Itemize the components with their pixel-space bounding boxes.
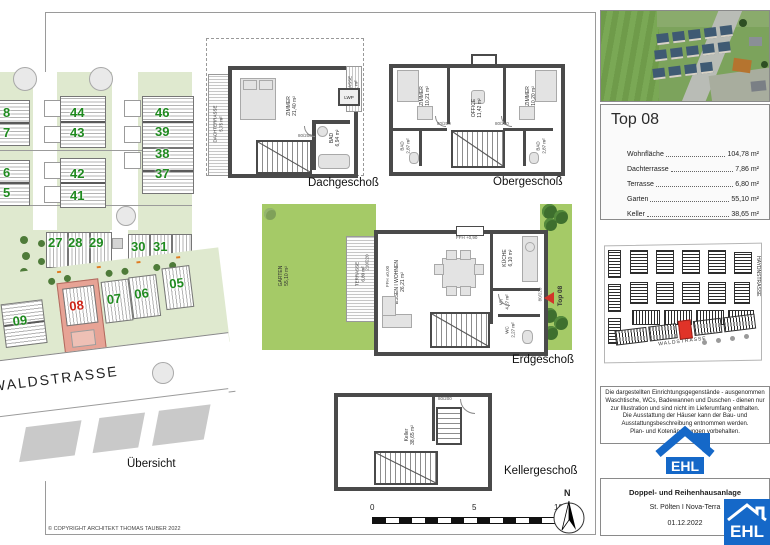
lwp-unit: LWP bbox=[338, 88, 360, 106]
floor-caption-keller: Kellergeschoß bbox=[504, 465, 578, 477]
unit-info-panel: Top 08 Wohnfläche104,78 m² Dachterrasse7… bbox=[600, 104, 770, 220]
chair-icon bbox=[434, 264, 444, 275]
door-dimension: 210/220 bbox=[366, 254, 371, 270]
garage-pad bbox=[44, 126, 61, 143]
garage-pad bbox=[124, 100, 141, 117]
aerial-photo bbox=[600, 10, 770, 102]
house-block bbox=[60, 96, 106, 148]
location-map: WALDSTRASSE HAYDNSTRASSE bbox=[602, 240, 766, 364]
floor-caption-dach: Dachgeschoß bbox=[308, 177, 379, 189]
entrance-arrow-icon bbox=[544, 292, 554, 304]
dining-table-icon bbox=[442, 258, 476, 288]
gray-house bbox=[751, 80, 767, 92]
plot-number: 29 bbox=[89, 236, 103, 249]
door-dimension: 80/200 bbox=[298, 134, 312, 139]
floor-caption-ober: Obergeschoß bbox=[493, 176, 563, 188]
plot-number: 31 bbox=[153, 240, 167, 253]
overview-caption: Übersicht bbox=[127, 458, 176, 470]
room-label-dachterrasse: DACHTERRASSE5,75 m² bbox=[212, 105, 223, 142]
tree-icon bbox=[152, 362, 174, 384]
room-label-office: OFFICE11,42 m² bbox=[471, 98, 484, 117]
plot-number: 30 bbox=[131, 240, 145, 253]
sink-icon bbox=[525, 242, 535, 252]
room-label-zimmer-links: ZIMMER10,21 m² bbox=[419, 86, 432, 106]
plot-number: 44 bbox=[70, 106, 84, 119]
sofa-icon bbox=[382, 296, 396, 316]
plot-number: 38 bbox=[155, 147, 169, 160]
room-label-zimmer: ZIMMER21,40 m² bbox=[286, 96, 299, 116]
house-block bbox=[142, 96, 194, 148]
tree-icon bbox=[264, 208, 276, 220]
unit-title: Top 08 bbox=[611, 111, 659, 129]
gray-house bbox=[749, 37, 762, 46]
garage-pad bbox=[44, 162, 61, 179]
svg-text:EHL: EHL bbox=[671, 458, 699, 474]
plot-number: 07 bbox=[106, 292, 122, 307]
plot-number: 06 bbox=[134, 286, 150, 301]
stairs bbox=[430, 312, 490, 348]
plot-number: 42 bbox=[70, 167, 84, 180]
garage-pad bbox=[44, 186, 61, 203]
wc-icon bbox=[409, 152, 419, 164]
scale-tick-0: 0 bbox=[370, 503, 374, 512]
area-row: Keller38,65 m² bbox=[627, 211, 759, 218]
area-row: Terrasse6,80 m² bbox=[627, 181, 759, 188]
area-row: Wohnfläche104,78 m² bbox=[627, 151, 759, 158]
floorplan-erdgeschoss: GARTEN55,10 m² TERRASSE6,80 m² FFH +0,90… bbox=[258, 196, 576, 366]
room-label-keller: Keller38,65 m² bbox=[404, 425, 417, 445]
parking-pad bbox=[19, 420, 81, 462]
garage-pad bbox=[44, 100, 61, 117]
bathtub-icon bbox=[318, 154, 350, 169]
room-label-bad-rechts: BAD2,87 m² bbox=[535, 138, 546, 153]
entrance-label-top08: Top 08 bbox=[557, 286, 565, 306]
parking-pad bbox=[93, 412, 145, 453]
room-label-wc: WC2,27 m² bbox=[504, 322, 515, 337]
bed-icon bbox=[397, 70, 419, 102]
orange-roof-house bbox=[732, 58, 752, 73]
chair-icon bbox=[446, 250, 457, 260]
ehl-logo-icon: EHL bbox=[652, 424, 718, 476]
copyright-text: © COPYRIGHT ARCHITEKT THOMAS TAUBER 2022 bbox=[48, 526, 181, 532]
stairs bbox=[256, 140, 312, 174]
tree-icon bbox=[761, 61, 768, 68]
plot-number-highlighted: 08 bbox=[69, 298, 85, 313]
housing-development bbox=[648, 19, 755, 91]
floor-caption-erd: Erdgeschoß bbox=[512, 354, 574, 366]
bed-icon bbox=[535, 70, 557, 102]
garage-pad bbox=[124, 152, 141, 169]
area-row: Dachterrasse7,86 m² bbox=[627, 166, 759, 173]
room-label-bad: BAD6,94 m² bbox=[329, 130, 342, 147]
garage-pad bbox=[124, 126, 141, 143]
scale-bar-segments bbox=[372, 517, 574, 524]
wc-icon bbox=[522, 330, 533, 344]
map-street-label-right: HAYDNSTRASSE bbox=[755, 256, 761, 296]
pillow-icon bbox=[243, 80, 257, 90]
wc-icon bbox=[529, 152, 539, 164]
desk-icon bbox=[417, 106, 433, 120]
highlight-terrace-pad bbox=[70, 329, 96, 348]
project-name: Doppel- und Reihenhausanlage bbox=[601, 488, 769, 497]
washbasin-icon bbox=[317, 126, 328, 137]
floorplan-kellergeschoss: Keller38,65 m² 80/200 Kellergeschoß bbox=[328, 383, 583, 495]
plot-number: 37 bbox=[155, 167, 169, 180]
plot-number: 09 bbox=[12, 313, 28, 328]
stairs-upper bbox=[436, 407, 462, 445]
site-plan-overview: 8 7 6 5 44 43 42 41 46 39 38 37 bbox=[0, 0, 195, 545]
area-row: Garten55,10 m² bbox=[627, 196, 759, 203]
chair-icon bbox=[474, 264, 484, 275]
street-label: WALDSTRASSE bbox=[0, 363, 119, 394]
room-label-kueche: KÜCHE6,10 m² bbox=[502, 249, 515, 267]
room-label-bad-links: BAD2,87 m² bbox=[399, 138, 410, 153]
ffh-annotation: FFH +0,90 bbox=[456, 236, 477, 241]
utility-box bbox=[112, 238, 123, 249]
north-arrow: N bbox=[550, 488, 590, 542]
plot-number: 8 bbox=[3, 106, 10, 119]
tree-icon bbox=[89, 67, 113, 91]
ehl-logo: EHL bbox=[652, 424, 718, 476]
floorplan-dachgeschoss: DACHTERRASSE5,75 m² TERRASSE2,11 m² LWP … bbox=[200, 30, 378, 190]
door-dimension: 80/220 bbox=[538, 288, 543, 302]
hedge-icon bbox=[20, 236, 28, 244]
tree-icon bbox=[13, 67, 37, 91]
parking-pad bbox=[152, 404, 210, 445]
chair-icon bbox=[460, 250, 471, 260]
plot-number: 05 bbox=[169, 276, 185, 291]
plot-number: 43 bbox=[70, 126, 84, 139]
plot-number: 27 bbox=[48, 236, 62, 249]
plan-sheet: 8 7 6 5 44 43 42 41 46 39 38 37 bbox=[0, 0, 770, 545]
pillow-icon bbox=[259, 80, 273, 90]
floorplan-obergeschoss: FFH +0,90 ZIMMER10,21 m² OFFICE11,42 m² … bbox=[383, 38, 573, 190]
svg-text:EHL: EHL bbox=[730, 522, 764, 541]
ehl-corner-logo-icon: EHL bbox=[724, 499, 770, 545]
plot-number: 28 bbox=[68, 236, 82, 249]
ehl-corner-logo: EHL bbox=[724, 499, 770, 545]
chair-icon bbox=[446, 286, 457, 296]
door-dimension: 80/200 bbox=[437, 122, 451, 127]
plot-number: 41 bbox=[70, 189, 84, 202]
plot-number: 5 bbox=[3, 186, 10, 199]
chair-icon bbox=[460, 286, 471, 296]
hedge-icon bbox=[38, 258, 45, 265]
door-dimension: 80/200 bbox=[438, 397, 452, 402]
hedge-icon bbox=[38, 240, 45, 247]
plot-number: 39 bbox=[155, 125, 169, 138]
ffh-annotation: FFH ±0,00 bbox=[386, 266, 391, 287]
desk-icon bbox=[519, 106, 535, 120]
tree-icon bbox=[116, 206, 136, 226]
door-dimension: 80/200 bbox=[495, 122, 509, 127]
plot-number: 7 bbox=[3, 126, 10, 139]
stairs bbox=[451, 130, 505, 168]
plot-number: 6 bbox=[3, 166, 10, 179]
room-label-garten: GARTEN55,10 m² bbox=[278, 266, 291, 287]
area-list: Wohnfläche104,78 m² Dachterrasse7,86 m² … bbox=[627, 151, 759, 226]
tree-icon bbox=[739, 19, 747, 27]
stairs bbox=[374, 451, 438, 485]
scale-tick-5: 5 bbox=[472, 503, 476, 512]
compass-icon bbox=[550, 488, 590, 542]
site-road bbox=[33, 72, 57, 230]
plot-number: 46 bbox=[155, 106, 169, 119]
sofa-icon bbox=[382, 314, 412, 328]
hedge-icon bbox=[22, 252, 30, 260]
room-label-zimmer-rechts: ZIMMER10,20 m² bbox=[525, 86, 538, 106]
